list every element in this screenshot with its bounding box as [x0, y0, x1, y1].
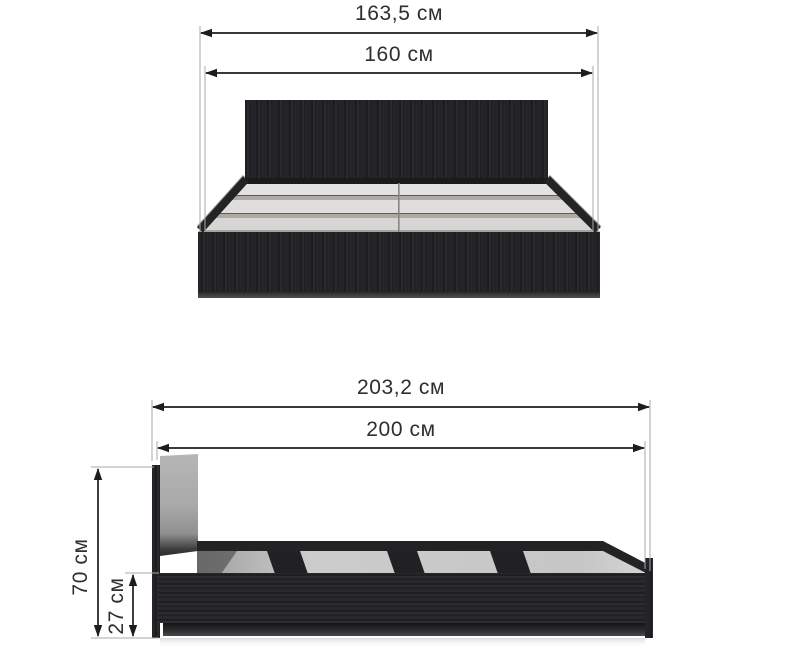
dim-label-inner-length: 200 см: [301, 419, 501, 441]
dim-label-headboard-height: 70 см: [70, 527, 92, 607]
dim-label-base-height: 27 см: [106, 571, 128, 641]
dimension-drawing: 163,5 см 160 см 203,2 см 200 см 70 см 27…: [0, 0, 800, 654]
dimension-arrows: [98, 33, 649, 636]
dimension-lines: [0, 0, 800, 654]
dim-label-inner-width: 160 см: [299, 44, 499, 66]
dim-label-outer-length: 203,2 см: [301, 377, 501, 399]
dim-label-outer-width: 163,5 см: [299, 3, 499, 25]
